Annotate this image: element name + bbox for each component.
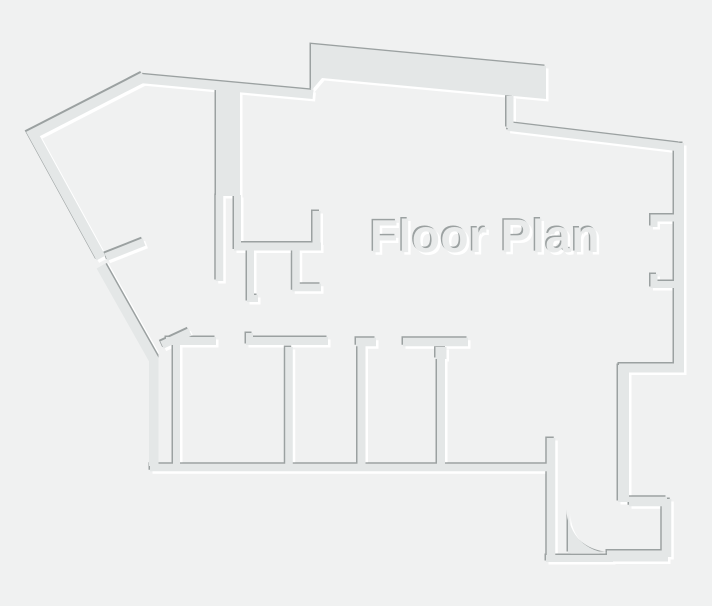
floor-plan-title: Floor Plan bbox=[370, 210, 600, 262]
floor-plan-canvas: Floor Plan bbox=[0, 0, 712, 606]
wall-chase bbox=[216, 85, 240, 196]
floor-plan-image: Floor Plan bbox=[0, 0, 712, 606]
